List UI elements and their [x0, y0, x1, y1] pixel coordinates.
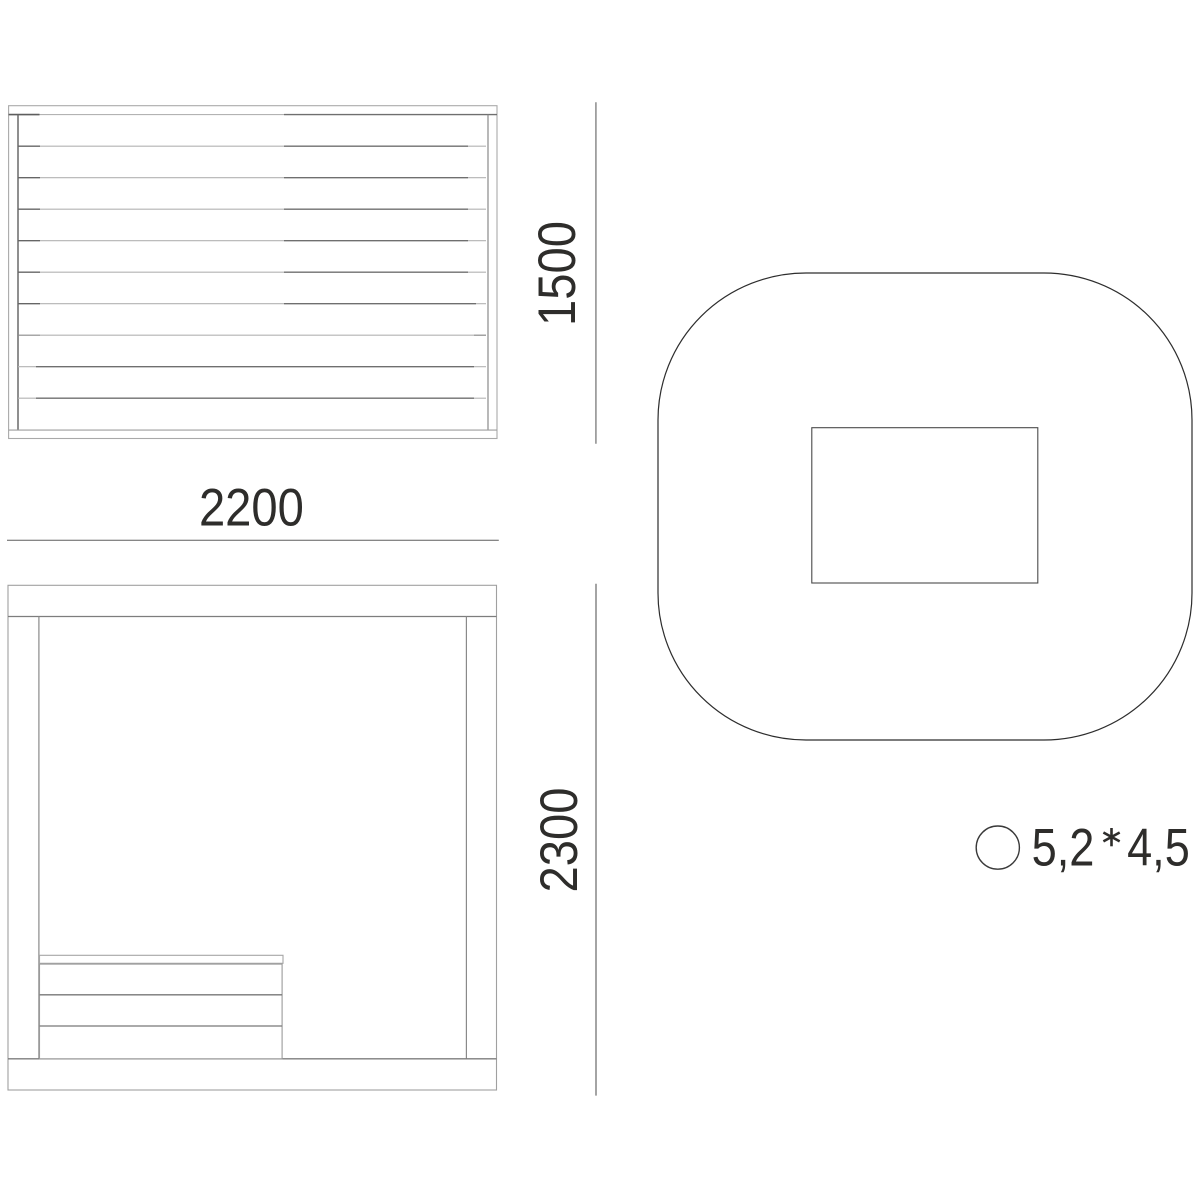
svg-text:1500: 1500: [527, 221, 586, 326]
svg-text:2200: 2200: [199, 478, 304, 537]
svg-text:4,5: 4,5: [1127, 818, 1190, 877]
svg-text:2300: 2300: [529, 788, 588, 893]
svg-text:5,2: 5,2: [1032, 818, 1095, 877]
